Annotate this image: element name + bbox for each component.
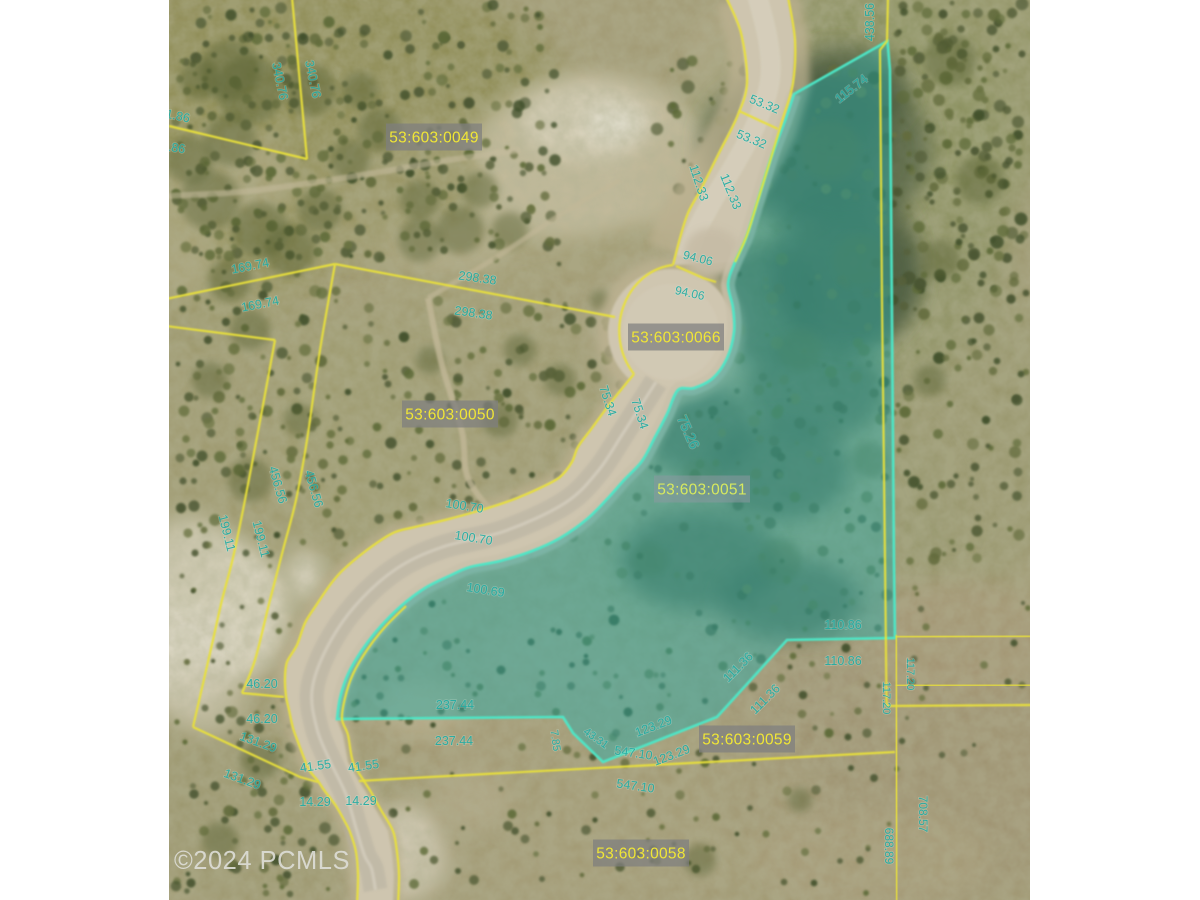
svg-text:688.89: 688.89 — [882, 828, 896, 865]
svg-text:©2024 PCMLS: ©2024 PCMLS — [174, 847, 350, 875]
svg-text:.86: .86 — [167, 140, 186, 156]
svg-text:53:603:0058: 53:603:0058 — [596, 846, 686, 863]
svg-text:53:603:0066: 53:603:0066 — [631, 330, 721, 347]
svg-text:53:603:0049: 53:603:0049 — [389, 130, 479, 147]
svg-text:14.29: 14.29 — [345, 794, 376, 808]
svg-text:117.20: 117.20 — [880, 682, 892, 715]
svg-text:46.20: 46.20 — [246, 712, 277, 726]
svg-text:708.57: 708.57 — [916, 796, 930, 833]
svg-text:438.56: 438.56 — [863, 3, 877, 41]
svg-text:53:603:0059: 53:603:0059 — [702, 732, 792, 749]
svg-text:46.20: 46.20 — [246, 677, 277, 691]
svg-text:117.20: 117.20 — [904, 658, 916, 691]
svg-text:110.86: 110.86 — [824, 654, 861, 668]
svg-text:237.44: 237.44 — [435, 734, 473, 748]
svg-text:53:603:0050: 53:603:0050 — [405, 407, 495, 424]
svg-text:237.44: 237.44 — [436, 698, 474, 712]
svg-text:53:603:0051: 53:603:0051 — [657, 482, 747, 499]
svg-text:14.29: 14.29 — [299, 795, 330, 809]
svg-text:110.86: 110.86 — [824, 618, 861, 632]
